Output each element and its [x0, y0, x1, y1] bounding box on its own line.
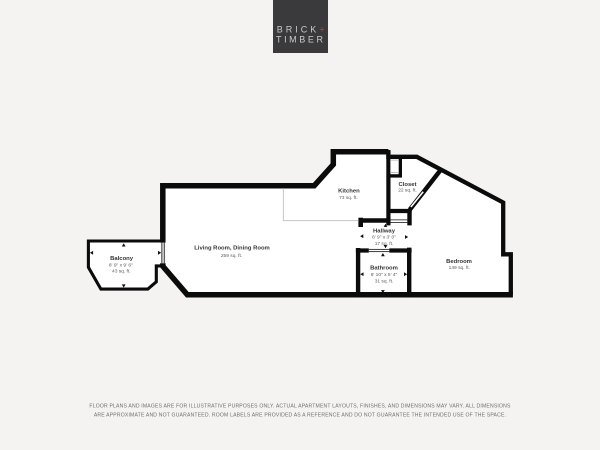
svg-text:TIMBER: TIMBER	[276, 35, 326, 45]
svg-text:Closet: Closet	[398, 182, 416, 188]
svg-text:Living Room, Dining Room: Living Room, Dining Room	[194, 245, 270, 251]
svg-text:Kitchen: Kitchen	[338, 189, 360, 195]
svg-text:22 sq. ft.: 22 sq. ft.	[398, 188, 417, 194]
svg-text:43 sq. ft.: 43 sq. ft.	[112, 268, 131, 274]
svg-text:8' 9" x 9' 6": 8' 9" x 9' 6"	[109, 263, 133, 269]
svg-text:17 sq. ft.: 17 sq. ft.	[375, 241, 394, 247]
svg-text:149 sq. ft.: 149 sq. ft.	[449, 265, 470, 271]
svg-text:6' 10" x 5' 4": 6' 10" x 5' 4"	[371, 272, 398, 278]
svg-text:Bathroom: Bathroom	[370, 266, 398, 272]
svg-text:6' 9" x 3' 0": 6' 9" x 3' 0"	[372, 235, 396, 241]
svg-text:BRICK+: BRICK+	[277, 24, 328, 34]
svg-text:Balcony: Balcony	[110, 256, 134, 262]
svg-text:Bedroom: Bedroom	[446, 259, 472, 265]
svg-text:31 sq. ft.: 31 sq. ft.	[375, 279, 394, 285]
svg-text:259 sq. ft.: 259 sq. ft.	[221, 253, 242, 259]
svg-text:FLOOR PLANS AND IMAGES ARE FOR: FLOOR PLANS AND IMAGES ARE FOR ILLUSTRAT…	[89, 403, 511, 409]
svg-text:73 sq. ft.: 73 sq. ft.	[339, 195, 358, 201]
svg-text:Hallway: Hallway	[373, 228, 396, 234]
svg-text:ARE APPROXIMATE AND NOT GUARAN: ARE APPROXIMATE AND NOT GUARANTEED. ROOM…	[94, 413, 506, 419]
